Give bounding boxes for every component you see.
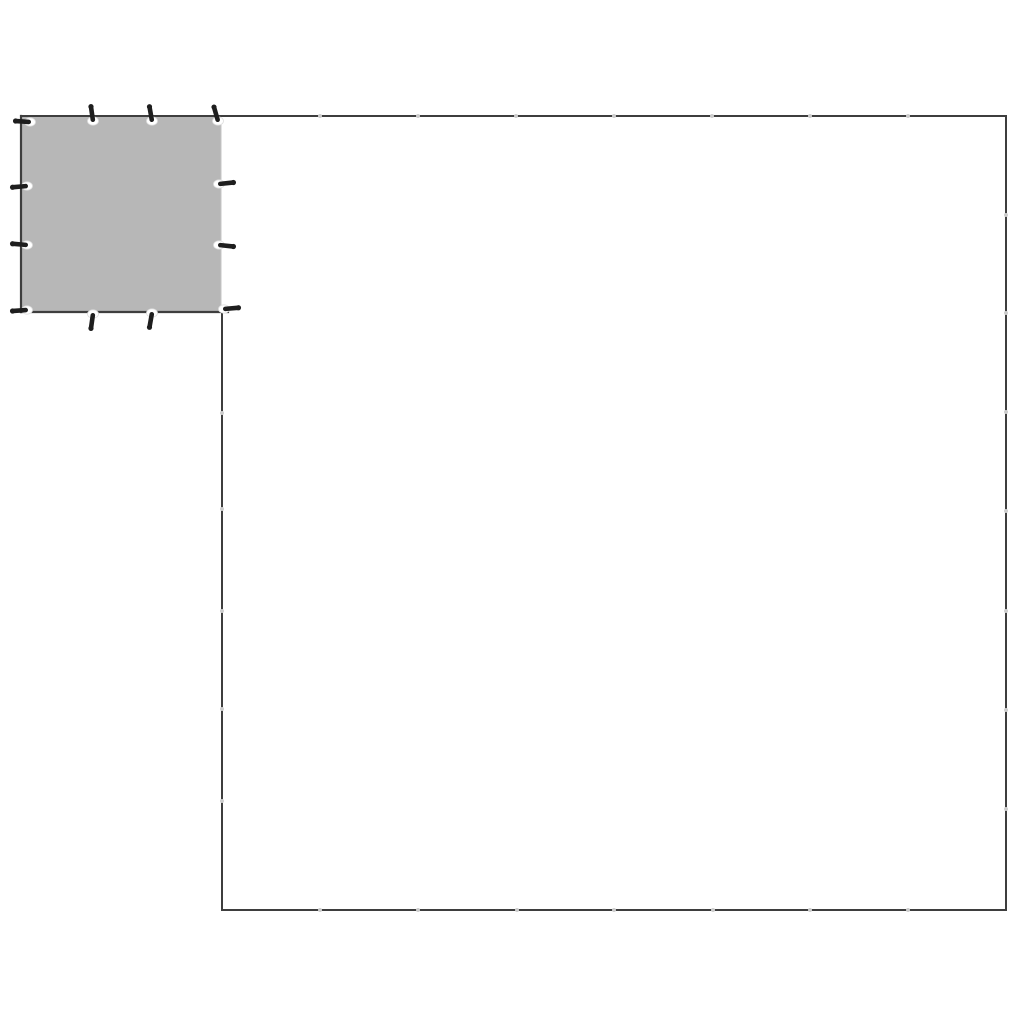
seam-joint-dot [416, 114, 420, 118]
grommet-pin-head [88, 104, 93, 109]
seam-joint-dot [220, 609, 224, 613]
seam-joint-dot [906, 114, 910, 118]
seam-joint-dot [612, 908, 616, 912]
grommet-pin-head [10, 308, 15, 313]
grommet-pin-head [10, 241, 15, 246]
grommet-pin-head [88, 326, 93, 331]
tarp-diagram-svg [0, 0, 1024, 1024]
seam-joint-dot [1004, 509, 1008, 513]
seam-joint-dot [808, 908, 812, 912]
grommet-pin-head [236, 305, 241, 310]
grommet-pin-head [231, 180, 236, 185]
seam-joint-dot [318, 908, 322, 912]
seam-joint-dot [220, 507, 224, 511]
seam-joint-dot [710, 114, 714, 118]
seam-joint-dot [220, 799, 224, 803]
seam-joint-dot [416, 908, 420, 912]
seam-joint-dot [318, 114, 322, 118]
tarp-size-comparison-diagram [0, 0, 1024, 1024]
seam-joint-dot [1004, 213, 1008, 217]
seam-joint-dot [808, 114, 812, 118]
seam-joint-dot [514, 114, 518, 118]
seam-joint-dot [1004, 609, 1008, 613]
seam-joint-dot [220, 707, 224, 711]
grommet-pin-head [13, 118, 18, 123]
seam-joint-dot [1004, 311, 1008, 315]
grommet-pin-head [211, 104, 216, 109]
seam-joint-dot [515, 908, 519, 912]
seam-joint-dot [612, 114, 616, 118]
grommet-pin-head [10, 185, 15, 190]
grommet-pin-head [231, 244, 236, 249]
seam-joint-dot [1004, 410, 1008, 414]
grommet-pin-head [147, 325, 152, 330]
small-tarp-fill [21, 116, 221, 312]
grommet-pin-head [147, 104, 152, 109]
seam-joint-dot [1004, 807, 1008, 811]
seam-joint-dot [711, 908, 715, 912]
seam-joint-dot [906, 908, 910, 912]
seam-joint-dot [1004, 708, 1008, 712]
seam-joint-dot [220, 411, 224, 415]
